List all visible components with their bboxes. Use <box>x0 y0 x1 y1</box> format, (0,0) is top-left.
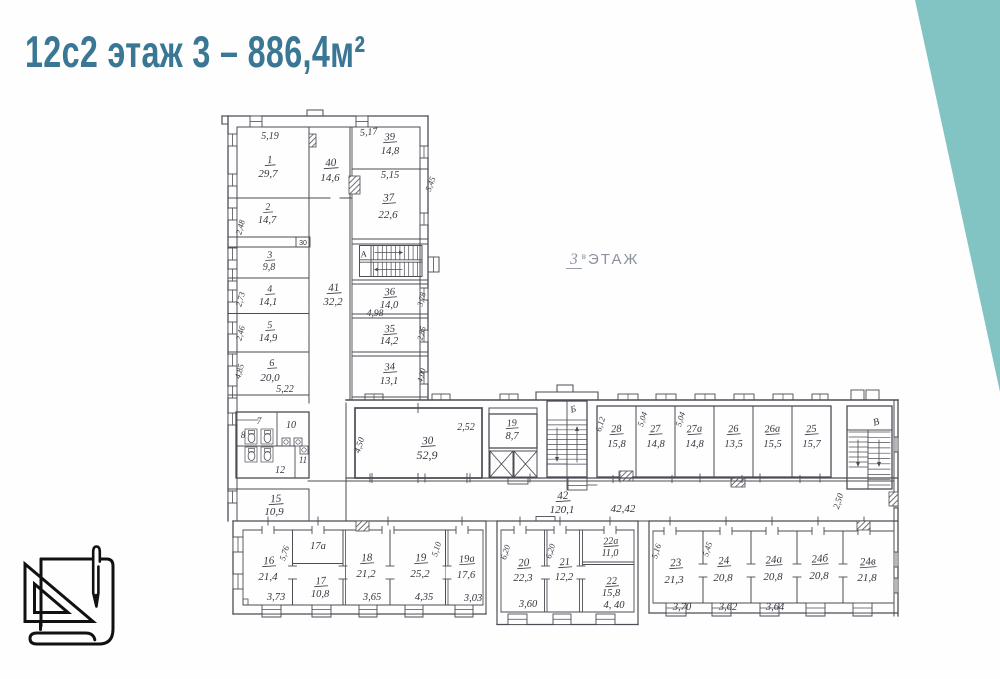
svg-text:15,8: 15,8 <box>607 439 626 450</box>
svg-text:42,42: 42,42 <box>611 503 636 515</box>
svg-text:16: 16 <box>263 555 275 568</box>
svg-text:3,60: 3,60 <box>518 599 538 610</box>
svg-text:3,65: 3,65 <box>362 592 381 603</box>
svg-text:21,4: 21,4 <box>258 571 278 583</box>
svg-text:14,7: 14,7 <box>258 215 277 226</box>
svg-text:5,45: 5,45 <box>700 540 714 557</box>
svg-text:3,73: 3,73 <box>266 592 285 603</box>
svg-text:12,2: 12,2 <box>555 572 574 583</box>
svg-text:6: 6 <box>269 358 275 369</box>
svg-text:5,45: 5,45 <box>423 175 437 192</box>
svg-text:8,7: 8,7 <box>505 431 519 442</box>
svg-text:2: 2 <box>265 202 271 213</box>
svg-text:А: А <box>359 249 368 260</box>
svg-text:2,50: 2,50 <box>831 492 846 511</box>
svg-text:19: 19 <box>415 552 427 565</box>
svg-text:15,8: 15,8 <box>602 588 621 599</box>
svg-text:6,12: 6,12 <box>593 415 607 433</box>
svg-text:29,7: 29,7 <box>258 168 278 180</box>
svg-text:30: 30 <box>299 240 307 247</box>
svg-text:5,04: 5,04 <box>635 410 649 428</box>
svg-text:14,9: 14,9 <box>259 333 278 344</box>
svg-text:15: 15 <box>270 493 282 506</box>
svg-text:52,9: 52,9 <box>417 448 438 462</box>
svg-text:4,98: 4,98 <box>367 309 384 319</box>
svg-text:32,2: 32,2 <box>322 296 343 308</box>
svg-text:5,17: 5,17 <box>359 126 379 139</box>
svg-text:14,2: 14,2 <box>380 336 399 347</box>
svg-text:17а: 17а <box>310 541 326 552</box>
svg-text:В: В <box>872 416 881 428</box>
svg-text:14,1: 14,1 <box>259 297 277 308</box>
svg-text:42: 42 <box>557 490 569 503</box>
svg-text:2,52: 2,52 <box>457 422 475 433</box>
svg-text:3: 3 <box>266 250 273 261</box>
svg-text:1: 1 <box>267 154 273 166</box>
svg-text:14,8: 14,8 <box>685 439 704 450</box>
svg-text:12: 12 <box>275 465 285 476</box>
svg-text:11,0: 11,0 <box>602 548 619 559</box>
svg-text:14,8: 14,8 <box>381 146 400 157</box>
svg-text:3,62: 3,62 <box>718 602 738 613</box>
svg-text:25,2: 25,2 <box>410 568 430 580</box>
svg-text:22,3: 22,3 <box>513 572 533 584</box>
svg-text:41: 41 <box>328 282 340 295</box>
svg-text:18: 18 <box>361 552 373 565</box>
svg-text:20: 20 <box>518 557 530 570</box>
svg-text:5,10: 5,10 <box>429 540 443 558</box>
svg-text:4, 40: 4, 40 <box>604 600 626 611</box>
svg-text:10,8: 10,8 <box>311 589 330 600</box>
svg-text:21,2: 21,2 <box>356 568 376 580</box>
svg-text:5: 5 <box>267 320 273 331</box>
svg-text:24: 24 <box>718 555 730 568</box>
svg-text:Б: Б <box>569 404 578 415</box>
svg-text:7: 7 <box>257 416 262 426</box>
svg-text:15,7: 15,7 <box>802 439 821 450</box>
svg-text:6,20: 6,20 <box>498 543 512 561</box>
svg-text:23: 23 <box>670 557 682 570</box>
svg-text:9,8: 9,8 <box>263 262 276 273</box>
svg-text:11: 11 <box>299 455 307 465</box>
svg-text:5,15: 5,15 <box>381 170 399 181</box>
svg-text:3,78: 3,78 <box>415 291 428 308</box>
svg-text:20,8: 20,8 <box>809 570 829 582</box>
svg-text:14,6: 14,6 <box>320 172 340 184</box>
svg-text:13,1: 13,1 <box>380 376 398 387</box>
svg-text:20,0: 20,0 <box>260 372 280 384</box>
svg-text:3,03: 3,03 <box>463 593 482 604</box>
svg-text:14,8: 14,8 <box>646 439 665 450</box>
svg-text:15,5: 15,5 <box>763 439 781 450</box>
svg-text:40: 40 <box>325 157 337 170</box>
svg-text:4,35: 4,35 <box>415 592 433 603</box>
svg-text:21,3: 21,3 <box>664 574 684 586</box>
svg-text:10: 10 <box>286 420 296 431</box>
svg-text:5,22: 5,22 <box>276 384 294 395</box>
svg-text:13,5: 13,5 <box>724 439 742 450</box>
svg-text:4: 4 <box>267 284 273 295</box>
svg-text:3,70: 3,70 <box>672 602 692 613</box>
svg-text:17,6: 17,6 <box>457 570 476 581</box>
svg-text:22,6: 22,6 <box>378 209 398 221</box>
svg-text:5,76: 5,76 <box>277 544 291 562</box>
svg-text:8: 8 <box>241 430 246 440</box>
svg-text:6,20: 6,20 <box>543 542 557 560</box>
svg-text:4,50: 4,50 <box>352 436 367 455</box>
svg-text:2,48: 2,48 <box>233 218 247 236</box>
svg-text:5,19: 5,19 <box>261 131 279 142</box>
svg-text:120,1: 120,1 <box>550 504 575 516</box>
svg-text:20,8: 20,8 <box>763 571 783 583</box>
svg-text:21,8: 21,8 <box>857 572 877 584</box>
svg-text:10,9: 10,9 <box>264 506 284 518</box>
svg-text:20,8: 20,8 <box>713 572 733 584</box>
svg-text:5,16: 5,16 <box>649 542 663 560</box>
svg-text:3,64: 3,64 <box>765 602 785 613</box>
